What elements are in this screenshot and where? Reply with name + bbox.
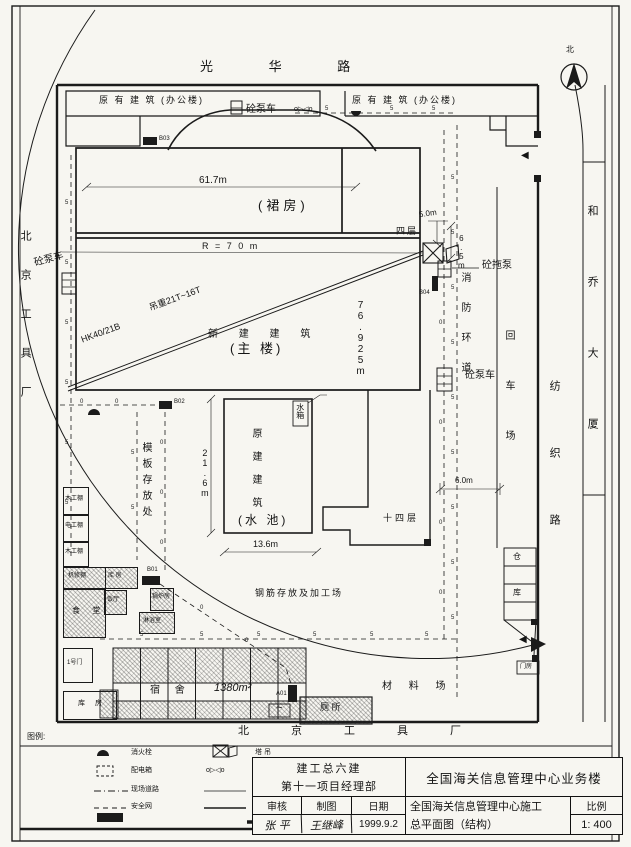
fence-tick: 5 [65, 200, 68, 206]
fence-tick: 5 [65, 380, 68, 386]
north-arrow-icon [561, 63, 587, 90]
warehouse-char: 库 [513, 589, 521, 598]
scale-label: 比例 [571, 796, 622, 815]
fence-tick: 5 [451, 450, 454, 456]
fence-tick: 5 [65, 320, 68, 326]
podium-label: (裙房) [258, 199, 309, 213]
shed-label: 饭厅 [107, 597, 119, 604]
shed-label: 库 房 [78, 700, 106, 708]
shed-label: 库 房 [108, 573, 122, 580]
shed-label: 食 堂 [72, 607, 105, 616]
fence-tick: 5 [451, 505, 454, 511]
pipe-tick: 0 [80, 399, 83, 405]
drafter-signature: 王继峰 [302, 814, 353, 835]
tower-label: 新 建 建 筑 [208, 329, 319, 340]
formwork-yard-label: 模板存放处 [140, 442, 151, 522]
gatehouse-label: 门房 [520, 664, 532, 671]
turnaround-yard-label: 回车场 [503, 330, 514, 480]
dim-6m-label: 6.0m [455, 477, 473, 486]
toilet-label: 厕 所 [320, 703, 341, 713]
tower-length-dim: 76.925m [355, 300, 366, 377]
podium-width-dim: 61.7m [199, 175, 227, 186]
shed-label: 1号门 [67, 660, 82, 667]
fence-tick: 5 [451, 560, 454, 566]
tower-sublabel: (主 楼) [230, 342, 283, 356]
pipe-tick: 0 [200, 605, 203, 611]
fence-tick: 5 [451, 615, 454, 621]
pipe-tick: 0 [160, 440, 163, 446]
fence-tick: 5 [65, 260, 68, 266]
legend-item-label: 现场道路 [131, 786, 159, 794]
pool-width-dim: 13.6m [253, 540, 278, 550]
legend-item-label: 消火栓 [131, 749, 152, 757]
fence-tick: 5 [425, 632, 428, 638]
fence-tick: 5 [451, 230, 454, 236]
fence-tick: 5 [432, 106, 435, 112]
fence-tick: 5 [131, 505, 134, 511]
pipe-tick: 0 [439, 420, 442, 426]
drawing-title-cell: 全国海关信息管理中心施工 总平面图（结构） [406, 796, 571, 834]
pipe-tick: 0 [115, 399, 118, 405]
dorm-label: 宿 舍 [150, 685, 191, 696]
fence-tick: 5 [257, 632, 260, 638]
header-drafter: 制图 [302, 796, 352, 815]
tower-crane-icon [423, 243, 459, 263]
fence-tick: 5 [390, 106, 393, 112]
title-block: 建工总六建 第十一项目经理部 全国海关信息管理中心业务楼 审核 制图 日期 张 … [252, 757, 623, 835]
fence-tick: 5 [325, 106, 328, 112]
dorm-area-label: 1380m² [214, 682, 251, 694]
trailer-pump-label: 砼拖泵 [482, 260, 512, 271]
org-line1: 建工总六建 [297, 760, 362, 776]
north-arrow-label: 北 [566, 46, 574, 55]
rebar-yard-label: 钢筋存放及加工场 [255, 589, 343, 599]
title-block-org: 建工总六建 第十一项目经理部 [253, 758, 406, 797]
existing-building-left-label: 原 有 建 筑 (办公楼) [99, 96, 204, 106]
fence-tick: 5 [451, 340, 454, 346]
fence-tick: 5 [313, 632, 316, 638]
fence-tick: 5 [140, 632, 143, 638]
scale-value: 1: 400 [571, 815, 622, 834]
water-tank-label: 水箱 [295, 403, 304, 419]
gate-marker: ◀ [521, 150, 529, 161]
drawing-title-line1: 全国海关信息管理中心施工 [410, 798, 570, 814]
legend-title: 图例: [27, 733, 45, 742]
fence-tick: 5 [65, 440, 68, 446]
legend-item-label: 塔 吊 [255, 749, 271, 757]
pipe-tick: 0 [245, 638, 248, 644]
tower-floors-label: 十四层 [383, 514, 419, 524]
pump-truck-east-box [437, 368, 452, 391]
pump-truck-top-label: 砼泵车 [246, 104, 276, 115]
pool-sublabel: (水 池) [238, 514, 288, 527]
fence-tick: 5 [451, 175, 454, 181]
fence-tick: 5 [451, 285, 454, 291]
pool-height-dim: 21.6m [199, 448, 209, 498]
existing-building-right-label: 原 有 建 筑 (办公楼) [352, 96, 457, 106]
b01-label: B01 [147, 567, 158, 574]
org-line2: 第十一项目经理部 [281, 778, 377, 794]
hydrant-icon [88, 409, 100, 415]
pipe-tick: 0 [160, 540, 163, 546]
date-value: 1999.9.2 [352, 815, 406, 834]
pipe-tick: 0 [160, 490, 163, 496]
shed-label: 木工棚 [65, 549, 83, 556]
drawing-title-line2: 总平面图（结构） [410, 816, 570, 832]
gate-marker: ◀ [519, 634, 527, 645]
legend-water-meter-icon: o▷◁o [206, 767, 225, 775]
dim-6-5m-label: 6.5m [456, 234, 465, 270]
crane-radius-line [62, 252, 423, 253]
legend-item-label: 配电箱 [131, 767, 152, 775]
b03-label: B03 [159, 136, 170, 143]
shed-label: 电工棚 [65, 523, 83, 530]
podium-floors-label: 四层 [396, 227, 418, 237]
fence-tick: 5 [65, 500, 68, 506]
a01-label: A01 [276, 691, 287, 698]
road-north-label: 光 华 路 [200, 60, 376, 74]
fence-tick: 5 [370, 632, 373, 638]
pool-label: 原建建筑 [250, 428, 261, 520]
dorm-hatch [113, 648, 306, 683]
pipe-tick: 0 [439, 590, 442, 596]
shed-label: 锅炉房 [152, 594, 170, 601]
fence-tick: 5 [131, 450, 134, 456]
fire-lane-label: 消防环道 [459, 272, 470, 392]
hydrant-icon [351, 111, 361, 116]
shed-label: 淋浴室 [143, 618, 161, 625]
b04-label: B04 [419, 290, 430, 297]
crane-radius-label: R = 7 0 m [200, 242, 261, 252]
b02-label: B02 [174, 399, 185, 406]
header-reviewer: 审核 [253, 796, 302, 815]
reviewer-signature: 张 平 [253, 814, 303, 835]
fence-tick: 5 [451, 395, 454, 401]
neighbor-west-label: 北京工具厂 [19, 230, 31, 425]
neighbor-east-label: 和乔大厦 [586, 205, 598, 489]
site-plan-page: 光 华 路 北 原 有 建 筑 (办公楼) 原 有 建 筑 (办公楼) 砼泵车 … [0, 0, 631, 847]
pipe-tick: 0 [439, 520, 442, 526]
fence-tick: 5 [200, 632, 203, 638]
header-date: 日期 [352, 796, 406, 815]
material-yard-label: 材 料 场 [382, 681, 453, 692]
crane-jib-line [68, 251, 423, 391]
shed-label: 机修棚 [68, 573, 86, 580]
legend-item-label: 安全网 [131, 803, 152, 811]
road-east-label: 纺织路 [548, 380, 560, 581]
warehouse-char: 仓 [513, 553, 521, 562]
water-meter-symbol: o▷◁o [294, 106, 313, 114]
pipe-tick: 0 [439, 320, 442, 326]
pump-truck-west-box [62, 273, 76, 294]
title-block-project: 全国海关信息管理中心业务楼 [406, 758, 622, 797]
wave-symbol: ~ [276, 702, 282, 714]
neighbor-south-label: 北京工具厂 [238, 725, 503, 737]
